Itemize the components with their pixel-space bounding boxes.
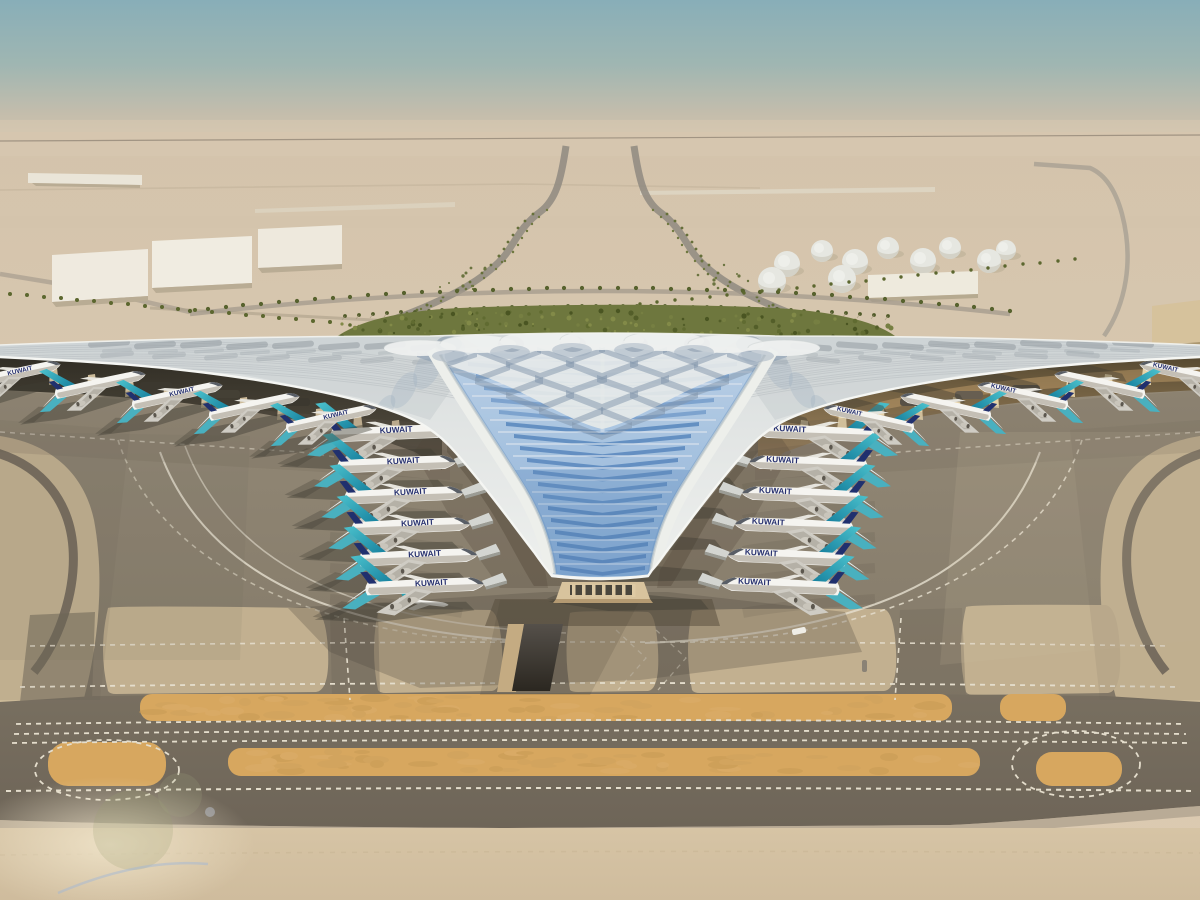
svg-text:KUWAIT: KUWAIT	[415, 578, 448, 589]
svg-text:KUWAIT: KUWAIT	[766, 455, 799, 466]
svg-text:KUWAIT: KUWAIT	[738, 577, 771, 588]
svg-text:KUWAIT: KUWAIT	[387, 456, 420, 467]
svg-text:KUWAIT: KUWAIT	[752, 517, 785, 528]
svg-text:KUWAIT: KUWAIT	[745, 548, 778, 559]
svg-text:KUWAIT: KUWAIT	[759, 486, 792, 497]
svg-text:KUWAIT: KUWAIT	[401, 518, 434, 529]
svg-text:KUWAIT: KUWAIT	[380, 425, 413, 436]
svg-text:KUWAIT: KUWAIT	[408, 549, 441, 560]
svg-text:KUWAIT: KUWAIT	[394, 487, 427, 498]
